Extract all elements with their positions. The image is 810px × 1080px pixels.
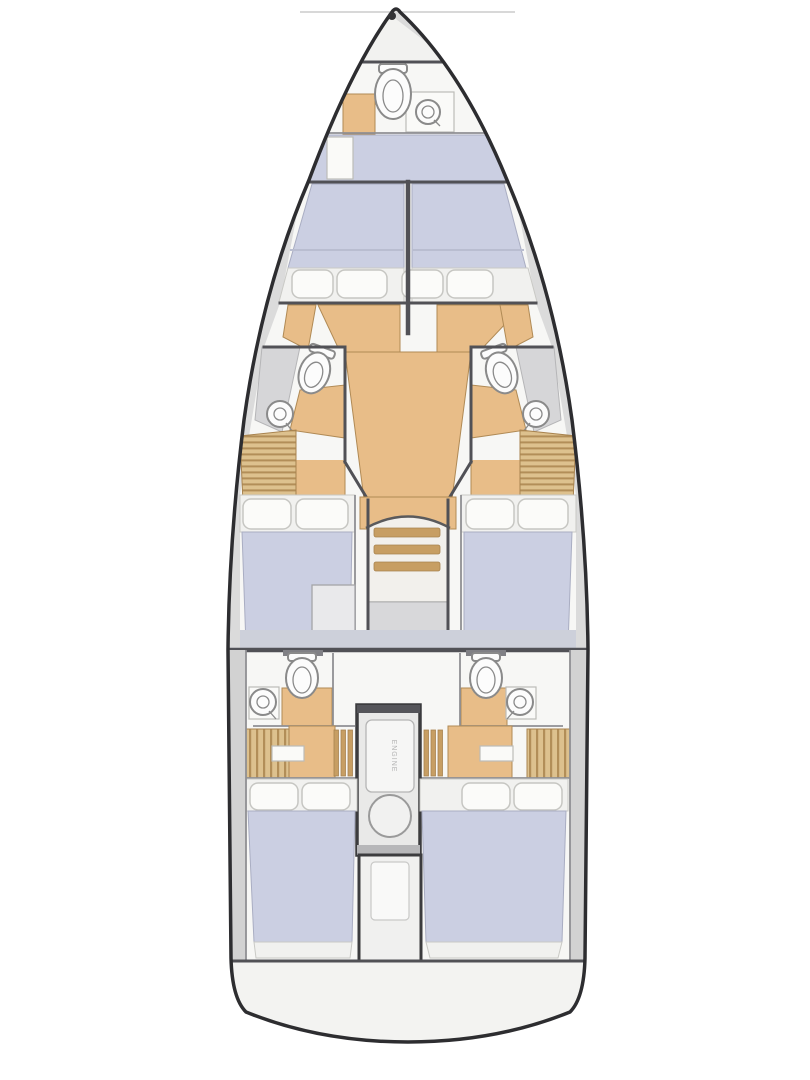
yacht-deck-plan: ENGINE: [0, 0, 810, 1080]
companionway-step-3: [374, 562, 440, 571]
fwd-sink-basin: [416, 100, 440, 124]
stbd-aft-toilet: [470, 653, 502, 698]
port-fwd-pillow-2: [337, 270, 387, 298]
engine-hatch: [366, 720, 414, 792]
stbd-aft-pillow-2: [514, 783, 562, 810]
stbd-mid-pillow-2: [518, 499, 568, 529]
companionway-step-1: [374, 528, 440, 537]
port-mid-pillow-2: [296, 499, 348, 529]
port-aft-toilet: [286, 653, 318, 698]
engine-box-top-band: [357, 705, 420, 713]
aft-center-hatch: [371, 862, 409, 920]
stbd-fwd-pillow-2: [447, 270, 493, 298]
stbd-aft-mattress: [422, 811, 566, 942]
stbd-aft-sink: [507, 689, 533, 715]
stbd-aft-step-2: [431, 730, 436, 776]
fwd-head-cabinet: [343, 94, 375, 134]
stbd-aft-step-platform: [480, 746, 513, 761]
port-aft-step-platform: [272, 746, 304, 761]
port-aft-sink: [250, 689, 276, 715]
bow-fitting: [388, 12, 396, 20]
companionway-step-2: [374, 545, 440, 554]
port-aft-step-2: [341, 730, 346, 776]
port-aft-bed-foot: [254, 942, 352, 958]
floorplan-canvas: ENGINE: [0, 0, 810, 1080]
port-aft-step-3: [348, 730, 353, 776]
port-aft-pillow-2: [302, 783, 350, 810]
engine-label: ENGINE: [390, 740, 397, 773]
stbd-mid-mattress: [464, 532, 572, 646]
stbd-aft-bed-foot: [426, 942, 562, 958]
port-aft-mattress: [248, 811, 355, 942]
port-mid-sink: [267, 401, 293, 427]
port-aft-toilet-bowl: [286, 658, 318, 698]
port-fwd-pillow-1: [292, 270, 333, 298]
stbd-aft-step-1: [424, 730, 429, 776]
stbd-mid-pillow-1: [466, 499, 514, 529]
stbd-aft-step-3: [438, 730, 443, 776]
port-aft-step-1: [334, 730, 339, 776]
engine-access-circle: [369, 795, 411, 837]
port-mid-pillow-1: [243, 499, 291, 529]
stbd-aft-pillow-1: [462, 783, 510, 810]
stbd-aft-toilet-bowl: [470, 658, 502, 698]
stbd-mid-sink: [523, 401, 549, 427]
mid-cabin-foot-band: [240, 630, 576, 650]
stbd-wardrobe-locker: [520, 430, 576, 503]
port-aft-pillow-1: [250, 783, 298, 810]
fwd-head-toilet: [375, 64, 411, 119]
swim-platform: [232, 962, 584, 1042]
forepeak-step: [327, 137, 353, 179]
engine-compartment: ENGINE: [357, 705, 421, 961]
port-wardrobe-locker: [240, 430, 296, 503]
